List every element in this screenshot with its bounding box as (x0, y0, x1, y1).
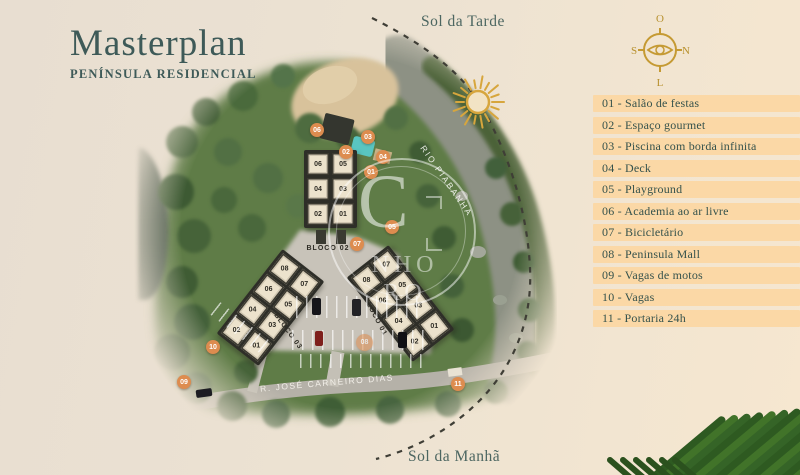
parked-car-red (315, 331, 323, 346)
building-annex (316, 230, 326, 244)
map-marker-01: 01 (364, 165, 378, 179)
morning-sun-label: Sol da Manhã (408, 448, 500, 466)
map-marker-08: 08 (356, 334, 373, 351)
compass-icon: O N S L (628, 8, 692, 90)
legend-item-09: 09 - Vagas de motos (593, 267, 800, 284)
parked-car (312, 298, 321, 315)
map-marker-11: 11 (451, 377, 465, 391)
compass-south: S (631, 45, 637, 57)
unit-cell: 03 (332, 178, 354, 200)
compass-west: O (656, 13, 664, 25)
map-marker-06: 06 (310, 123, 324, 137)
legend-item-06: 06 - Academia ao ar livre (593, 203, 800, 220)
map-marker-05: 05 (385, 220, 399, 234)
parking-stripes (300, 354, 428, 368)
building-annex (336, 230, 346, 244)
legend-item-03: 03 - Piscina com borda infinita (593, 138, 800, 155)
unit-cell: 04 (307, 178, 329, 200)
river-rock (509, 333, 523, 343)
bloco-02-label: BLOCO 02 (303, 245, 353, 252)
legend-item-05: 05 - Playground (593, 181, 800, 198)
unit-cell: 06 (307, 153, 329, 175)
map-marker-10: 10 (206, 340, 220, 354)
page-title: Masterplan (70, 22, 257, 65)
compass-north: N (682, 45, 690, 57)
parked-car (352, 299, 361, 316)
unit-cell: 01 (332, 203, 354, 225)
legend-item-07: 07 - Bicicletário (593, 224, 800, 241)
masterplan-canvas: RIO PIABANHA R. JOSÉ CARNEIRO DIAS Maste… (0, 0, 800, 475)
page-title-block: Masterplan PENÍNSULA RESIDENCIAL (70, 22, 257, 82)
map-marker-02: 02 (339, 145, 353, 159)
map-marker-03: 03 (361, 130, 375, 144)
map-marker-09: 09 (177, 375, 191, 389)
legend-item-08: 08 - Peninsula Mall (593, 246, 800, 263)
parked-car (398, 332, 407, 348)
legend-item-04: 04 - Deck (593, 160, 800, 177)
legend-item-11: 11 - Portaria 24h (593, 310, 800, 327)
legend-item-10: 10 - Vagas (593, 289, 800, 306)
legend-item-02: 02 - Espaço gourmet (593, 117, 800, 134)
river-rock (493, 295, 507, 305)
legend-item-01: 01 - Salão de festas (593, 95, 800, 112)
compass-east: L (657, 77, 664, 89)
amenities-legend: 01 - Salão de festas 02 - Espaço gourmet… (593, 95, 800, 332)
afternoon-sun-label: Sol da Tarde (421, 13, 505, 31)
map-marker-04: 04 (376, 150, 390, 164)
page-subtitle: PENÍNSULA RESIDENCIAL (70, 67, 257, 82)
building-bloco-02: 06 05 04 03 02 01 (304, 150, 357, 228)
river-rock (470, 246, 486, 258)
unit-cell: 02 (307, 203, 329, 225)
map-marker-07: 07 (350, 237, 364, 251)
